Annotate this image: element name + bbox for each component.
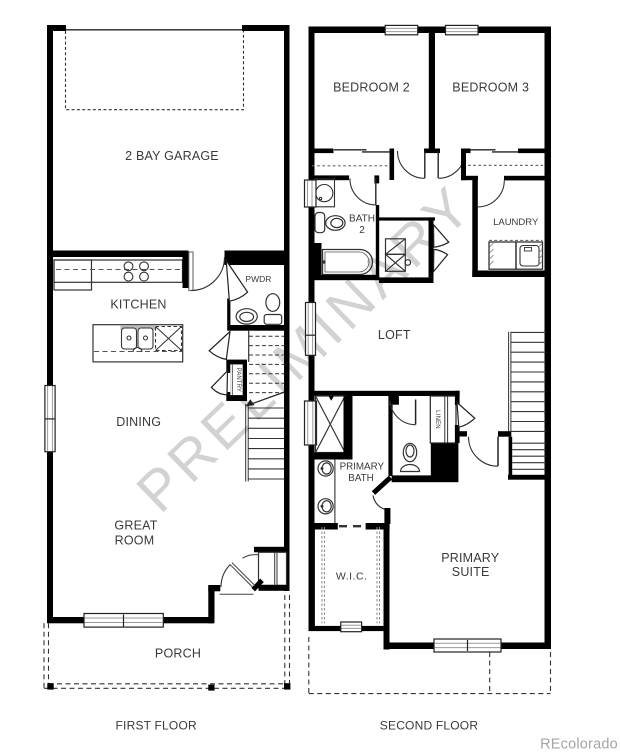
svg-text:PWDR: PWDR — [245, 274, 271, 284]
svg-text:SECOND FLOOR: SECOND FLOOR — [380, 719, 479, 733]
svg-text:PRIMARY: PRIMARY — [441, 551, 500, 565]
svg-text:PORCH: PORCH — [155, 647, 201, 661]
svg-text:BEDROOM 3: BEDROOM 3 — [452, 81, 529, 95]
svg-text:GREAT: GREAT — [114, 519, 157, 533]
svg-text:BATH: BATH — [349, 214, 375, 225]
svg-text:PANTRY: PANTRY — [235, 368, 241, 392]
svg-text:LOFT: LOFT — [378, 328, 411, 342]
svg-text:SUITE: SUITE — [452, 565, 490, 579]
svg-text:ROOM: ROOM — [115, 534, 155, 548]
svg-text:2 BAY GARAGE: 2 BAY GARAGE — [125, 149, 219, 163]
svg-text:REcolorado: REcolorado — [540, 737, 618, 753]
svg-text:PRIMARY: PRIMARY — [340, 462, 385, 473]
svg-text:FIRST FLOOR: FIRST FLOOR — [116, 719, 197, 733]
svg-text:W.I.C.: W.I.C. — [336, 571, 368, 583]
svg-text:LAUNDRY: LAUNDRY — [493, 217, 539, 228]
svg-text:LINEN: LINEN — [434, 410, 440, 429]
svg-text:2: 2 — [359, 225, 365, 236]
svg-text:KITCHEN: KITCHEN — [110, 298, 166, 312]
svg-text:DINING: DINING — [116, 415, 161, 429]
svg-text:BEDROOM 2: BEDROOM 2 — [333, 81, 410, 95]
svg-text:BATH: BATH — [348, 473, 373, 484]
